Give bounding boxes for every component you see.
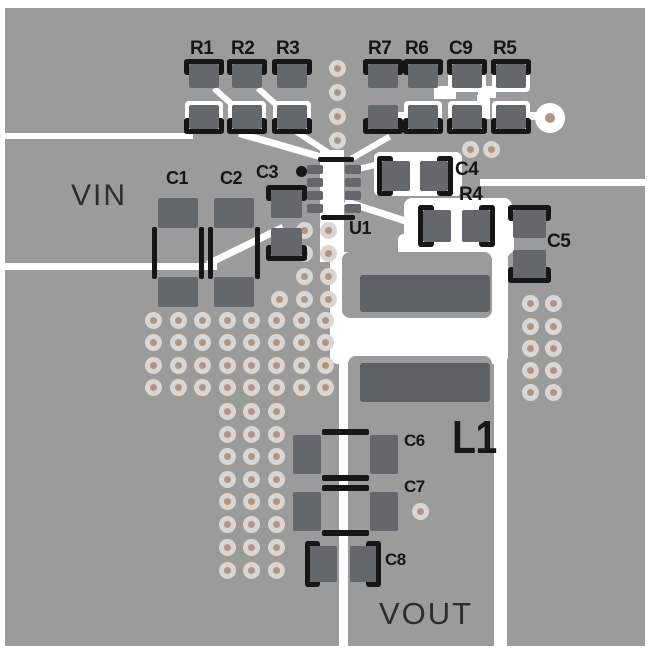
via: [243, 471, 260, 488]
via-drill: [488, 146, 495, 153]
via: [219, 357, 236, 374]
pad-c6-1: [293, 435, 321, 474]
via-drill: [224, 567, 231, 574]
via-drill: [417, 508, 424, 515]
via-drill: [298, 384, 305, 391]
via-drill: [175, 384, 182, 391]
silk-r7-top: [363, 59, 403, 75]
via-drill: [550, 300, 557, 307]
via: [243, 562, 260, 579]
via: [268, 403, 285, 420]
trace-vin-mid: [0, 263, 217, 270]
via-drill: [248, 476, 255, 483]
via-drill: [199, 317, 206, 324]
label-r2: R2: [231, 39, 254, 58]
via-drill: [224, 408, 231, 415]
pcb-screenshot: R1 R2 R3 R7 R6 C9 R5 C1 C2 C3 C4 R4 C5 U…: [0, 0, 655, 655]
via: [170, 312, 187, 329]
via-drill: [224, 521, 231, 528]
silk-c7-bot: [322, 530, 369, 536]
via: [219, 539, 236, 556]
via-drill: [273, 431, 280, 438]
via: [194, 312, 211, 329]
silk-c5-top: [508, 205, 551, 221]
via-drill: [550, 367, 557, 374]
via-drill: [273, 544, 280, 551]
via-drill: [273, 498, 280, 505]
via: [219, 403, 236, 420]
via-drill: [224, 362, 231, 369]
via: [219, 471, 236, 488]
via: [145, 379, 162, 396]
via-drill: [199, 384, 206, 391]
via-drill: [273, 567, 280, 574]
label-r4: R4: [459, 185, 482, 204]
via-drill: [224, 544, 231, 551]
via-drill: [325, 296, 332, 303]
silk-c2-left: [208, 227, 213, 279]
trace-vin-top: [0, 133, 193, 139]
via: [145, 357, 162, 374]
trace-vout-vertical: [339, 360, 348, 646]
via-drill: [298, 362, 305, 369]
via: [412, 503, 429, 520]
via-drill: [273, 476, 280, 483]
silk-c2-right: [255, 227, 260, 279]
label-r7: R7: [368, 39, 391, 58]
via-drill: [467, 146, 474, 153]
via: [268, 357, 285, 374]
via: [320, 268, 337, 285]
pad-c6-2: [370, 435, 398, 474]
via-drill: [224, 317, 231, 324]
via-drill: [276, 296, 283, 303]
via-drill: [150, 317, 157, 324]
via-drill: [273, 317, 280, 324]
via-drill: [150, 339, 157, 346]
via-drill: [325, 273, 332, 280]
via-drill: [224, 339, 231, 346]
pad-c1-2: [158, 277, 198, 307]
pad-u1-l3: [307, 191, 323, 200]
silk-c8-left: [305, 541, 320, 587]
via: [268, 471, 285, 488]
via-drill: [175, 362, 182, 369]
pad-c1-1: [158, 198, 198, 228]
silk-c3-bot: [266, 245, 307, 261]
via: [268, 539, 285, 556]
silk-c4-left: [377, 156, 393, 196]
silk-c5-bot: [508, 267, 551, 283]
label-c4: C4: [455, 160, 478, 179]
via-drill: [273, 453, 280, 460]
via: [545, 295, 562, 312]
silk-r3-bot: [272, 118, 312, 134]
via-drill: [325, 250, 332, 257]
via: [293, 379, 310, 396]
via: [219, 379, 236, 396]
via-drill: [322, 317, 329, 324]
silk-r5-bot: [491, 118, 531, 134]
via-drill: [248, 567, 255, 574]
via-drill: [248, 453, 255, 460]
via-drill: [334, 65, 341, 72]
test-point-drill: [545, 113, 555, 123]
via: [545, 384, 562, 401]
silk-r2-bot: [227, 118, 267, 134]
via: [219, 516, 236, 533]
via-drill: [298, 317, 305, 324]
via-drill: [527, 367, 534, 374]
via-drill: [224, 384, 231, 391]
via: [219, 562, 236, 579]
silk-c9-top: [447, 59, 487, 75]
via: [268, 448, 285, 465]
pad-u1-l1: [307, 165, 323, 174]
via-drill: [325, 227, 332, 234]
via: [268, 379, 285, 396]
via-drill: [248, 544, 255, 551]
via: [545, 318, 562, 335]
silk-c9-bot: [447, 118, 487, 134]
via: [268, 562, 285, 579]
silk-c7-top: [322, 485, 369, 491]
via-drill: [273, 521, 280, 528]
via-drill: [527, 300, 534, 307]
label-c6: C6: [404, 432, 425, 449]
label-vin: VIN: [71, 181, 127, 211]
label-r1: R1: [190, 39, 213, 58]
via: [317, 334, 334, 351]
silk-r6-top: [403, 59, 443, 75]
via: [219, 334, 236, 351]
via: [329, 108, 346, 125]
via: [329, 132, 346, 149]
label-l1: L1: [452, 414, 497, 460]
via-drill: [298, 339, 305, 346]
via-drill: [550, 389, 557, 396]
pad-c2-2: [214, 277, 254, 307]
via-drill: [334, 137, 341, 144]
via: [243, 379, 260, 396]
via: [329, 60, 346, 77]
via-drill: [224, 431, 231, 438]
silk-r4-left: [418, 205, 434, 247]
label-vout: VOUT: [379, 598, 473, 629]
via: [320, 222, 337, 239]
silk-c6-bot: [322, 475, 369, 481]
label-c7: C7: [404, 478, 425, 495]
via-drill: [248, 431, 255, 438]
via-drill: [199, 339, 206, 346]
via-drill: [322, 384, 329, 391]
via: [219, 426, 236, 443]
test-point: [535, 103, 565, 133]
via: [268, 493, 285, 510]
via-drill: [550, 323, 557, 330]
via-drill: [248, 317, 255, 324]
via-drill: [248, 521, 255, 528]
via: [194, 357, 211, 374]
via-drill: [334, 89, 341, 96]
via: [317, 312, 334, 329]
via: [268, 334, 285, 351]
via-drill: [550, 345, 557, 352]
via: [296, 291, 313, 308]
silk-c8-right: [366, 541, 381, 587]
via: [320, 291, 337, 308]
via: [243, 357, 260, 374]
via-drill: [248, 408, 255, 415]
silk-c1-right: [199, 227, 204, 279]
via-drill: [224, 476, 231, 483]
via: [219, 312, 236, 329]
pad-c7-1: [293, 492, 321, 531]
via-drill: [301, 296, 308, 303]
via: [522, 384, 539, 401]
label-c2: C2: [220, 169, 242, 187]
via: [271, 291, 288, 308]
via: [243, 516, 260, 533]
via-drill: [248, 362, 255, 369]
via: [317, 379, 334, 396]
via: [268, 426, 285, 443]
label-r5: R5: [493, 39, 516, 58]
via-drill: [527, 389, 534, 396]
via-drill: [248, 384, 255, 391]
via-drill: [150, 362, 157, 369]
via: [293, 357, 310, 374]
via: [545, 340, 562, 357]
via: [194, 379, 211, 396]
silk-r6-bot: [403, 118, 443, 134]
silk-r1-bot: [184, 118, 224, 134]
pcb-board: R1 R2 R3 R7 R6 C9 R5 C1 C2 C3 C4 R4 C5 U…: [5, 8, 645, 646]
silk-r7-bot: [363, 118, 403, 134]
pad-c7-2: [370, 492, 398, 531]
via-drill: [273, 384, 280, 391]
via: [483, 141, 500, 158]
via: [268, 516, 285, 533]
silk-r1-top: [184, 59, 224, 75]
via: [522, 340, 539, 357]
silk-r4-right: [479, 205, 495, 247]
via-drill: [199, 362, 206, 369]
via: [293, 334, 310, 351]
via: [194, 334, 211, 351]
via: [219, 448, 236, 465]
via-drill: [273, 339, 280, 346]
via: [268, 312, 285, 329]
pad-u1-r1: [345, 165, 361, 174]
via-drill: [248, 339, 255, 346]
silk-c6-top: [322, 429, 369, 435]
label-r6: R6: [405, 39, 428, 58]
label-r3: R3: [276, 39, 299, 58]
via: [243, 312, 260, 329]
via: [329, 84, 346, 101]
via: [317, 357, 334, 374]
pad-u1-r4: [345, 204, 361, 213]
pad-u1-l2: [307, 178, 323, 187]
silk-c1-left: [152, 227, 157, 279]
label-c8: C8: [385, 551, 406, 568]
via: [170, 334, 187, 351]
via-drill: [150, 384, 157, 391]
via: [170, 357, 187, 374]
silk-r5-top: [491, 59, 531, 75]
via: [545, 362, 562, 379]
pad-u1-r3: [345, 191, 361, 200]
via: [522, 295, 539, 312]
silk-c3-top: [266, 185, 307, 201]
via-drill: [527, 345, 534, 352]
via-drill: [175, 339, 182, 346]
via: [243, 334, 260, 351]
via-drill: [527, 323, 534, 330]
via-drill: [273, 362, 280, 369]
via: [462, 141, 479, 158]
pad-l1-1: [360, 275, 490, 312]
via-drill: [224, 453, 231, 460]
via-drill: [248, 498, 255, 505]
via: [243, 403, 260, 420]
via: [243, 539, 260, 556]
via-drill: [322, 362, 329, 369]
label-c5: C5: [547, 232, 570, 251]
via-drill: [273, 408, 280, 415]
via: [296, 268, 313, 285]
via: [293, 312, 310, 329]
via-drill: [175, 317, 182, 324]
via: [522, 362, 539, 379]
via: [243, 448, 260, 465]
silk-r3-top: [272, 59, 312, 75]
pad-l1-2: [360, 363, 490, 402]
label-c3: C3: [256, 163, 278, 181]
via: [145, 334, 162, 351]
pad-c2-1: [214, 198, 254, 228]
via-drill: [301, 273, 308, 280]
label-c9: C9: [449, 39, 472, 58]
silk-c4-right: [437, 156, 453, 196]
via-drill: [334, 113, 341, 120]
via: [219, 493, 236, 510]
via: [243, 493, 260, 510]
via: [320, 245, 337, 262]
via: [243, 426, 260, 443]
label-c1: C1: [166, 169, 188, 187]
via: [145, 312, 162, 329]
via-drill: [224, 498, 231, 505]
via: [522, 318, 539, 335]
trace-right-horizontal: [480, 179, 645, 186]
label-u1: U1: [349, 219, 371, 237]
silk-r2-top: [227, 59, 267, 75]
via: [170, 379, 187, 396]
pin1-dot: [296, 166, 307, 177]
pad-u1-l4: [307, 204, 323, 213]
silk-u1-top: [318, 157, 354, 162]
via-drill: [322, 339, 329, 346]
pad-u1-r2: [345, 178, 361, 187]
